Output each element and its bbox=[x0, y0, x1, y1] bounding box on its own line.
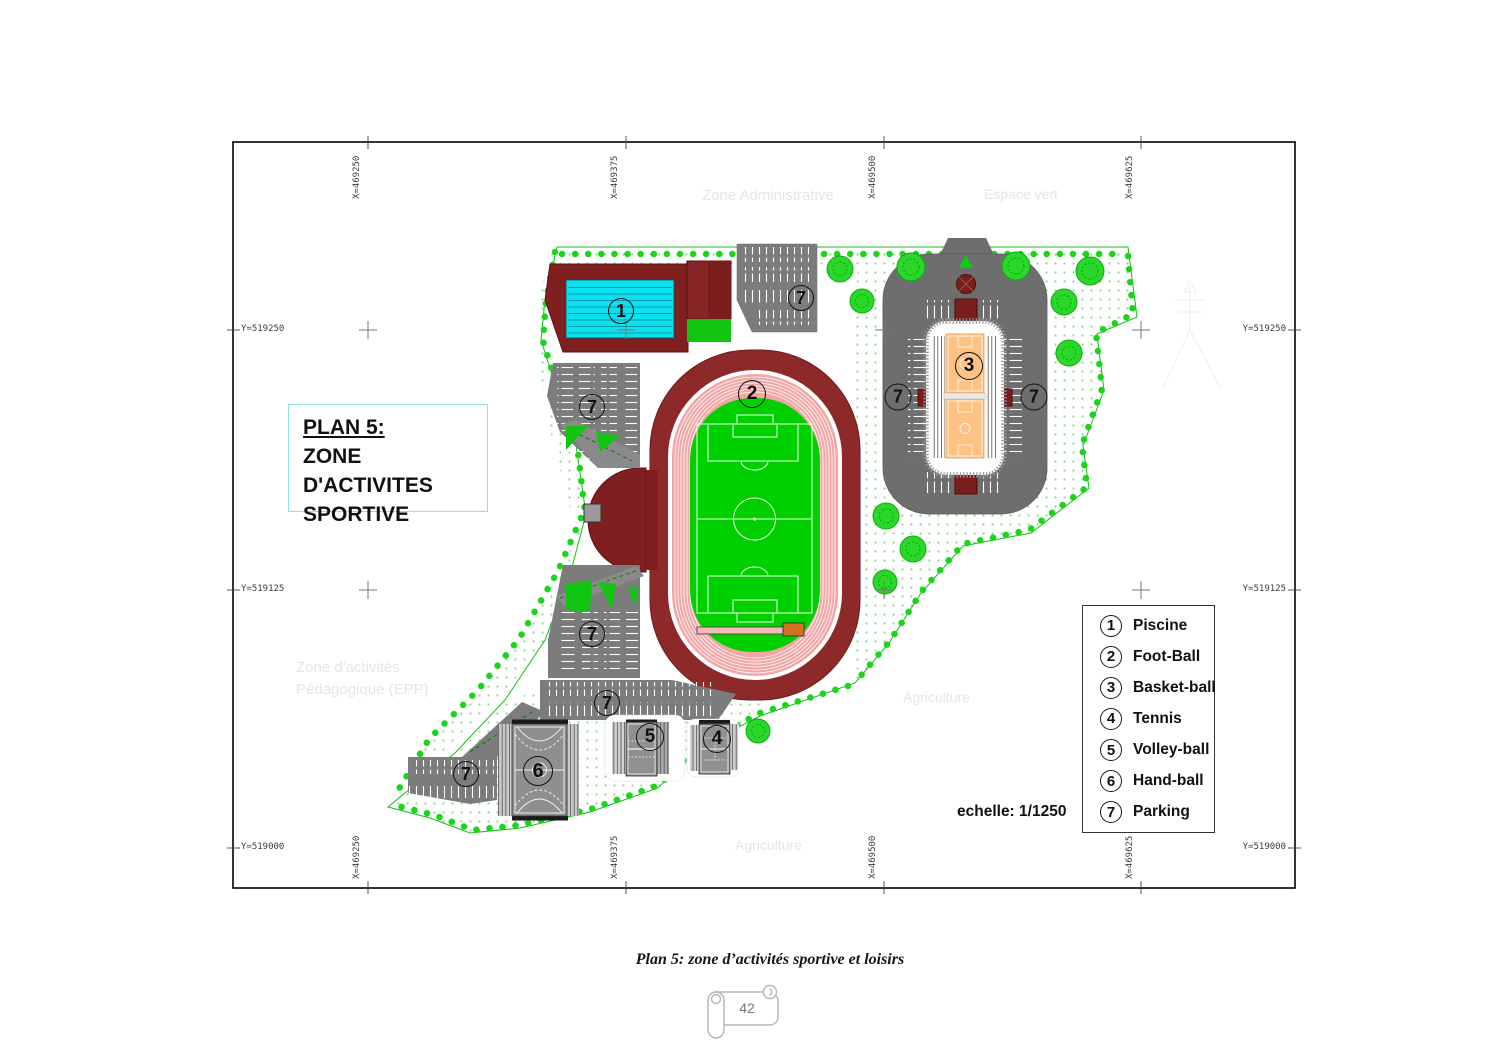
marker-parking-bottom: 7 bbox=[594, 690, 620, 716]
basketball-court-south bbox=[946, 399, 984, 458]
long-jump-pit bbox=[783, 623, 804, 636]
coord-y-left-1: Y=519250 bbox=[241, 324, 284, 335]
coord-y-left-3: Y=519000 bbox=[241, 842, 284, 853]
coord-x-bottom-3: X=469500 bbox=[868, 836, 879, 879]
legend-number-circle: 6 bbox=[1100, 770, 1122, 792]
long-jump-runway bbox=[697, 627, 785, 634]
marker-football: 2 bbox=[738, 380, 766, 408]
legend-number-circle: 4 bbox=[1100, 708, 1122, 730]
marker-parking-basket-east: 7 bbox=[1021, 384, 1048, 411]
coord-x-bottom-2: X=469375 bbox=[610, 836, 621, 879]
marker-tennis: 4 bbox=[703, 725, 731, 753]
marker-parking-basket-west: 7 bbox=[885, 384, 912, 411]
document-page: PLAN 5: ZONE D'ACTIVITES SPORTIVE 1 Pisc… bbox=[0, 0, 1489, 1053]
legend-item-hand: 6 Hand-ball bbox=[1100, 770, 1214, 792]
coord-y-right-2: Y=519125 bbox=[1206, 584, 1286, 595]
coord-x-top-2: X=469375 bbox=[610, 156, 621, 199]
marker-basket: 3 bbox=[955, 352, 983, 380]
marker-piscine: 1 bbox=[608, 298, 634, 324]
coord-y-right-1: Y=519250 bbox=[1206, 324, 1286, 335]
legend-label: Piscine bbox=[1133, 617, 1187, 635]
legend-number-circle: 1 bbox=[1100, 615, 1122, 637]
marker-parking-topright: 7 bbox=[788, 285, 814, 311]
green-strip bbox=[687, 319, 731, 342]
watermark-zone-administrative: Zone Administrative bbox=[702, 187, 834, 204]
football-field bbox=[690, 398, 820, 652]
watermark-agriculture-right: Agriculture bbox=[903, 689, 970, 705]
legend-number-circle: 7 bbox=[1100, 801, 1122, 823]
coord-x-top-4: X=469625 bbox=[1125, 156, 1136, 199]
marker-volley: 5 bbox=[636, 723, 664, 751]
site-plan-drawing bbox=[0, 0, 1489, 1053]
legend-label: Hand-ball bbox=[1133, 772, 1204, 790]
plan-title-line3: SPORTIVE bbox=[303, 500, 487, 529]
legend-item-football: 2 Foot-Ball bbox=[1100, 646, 1214, 668]
coord-x-top-1: X=469250 bbox=[352, 156, 363, 199]
watermark-agriculture-bottom: Agriculture bbox=[735, 837, 802, 853]
legend-number-circle: 2 bbox=[1100, 646, 1122, 668]
legend-item-volley: 5 Volley-ball bbox=[1100, 739, 1214, 761]
legend-label: Foot-Ball bbox=[1133, 648, 1200, 666]
legend-item-tennis: 4 Tennis bbox=[1100, 708, 1214, 730]
marker-parking-left-lower: 7 bbox=[579, 621, 605, 647]
legend-item-parking: 7 Parking bbox=[1100, 801, 1214, 823]
watermark-zone-pedagogique-2: Pédagogique (EPP) bbox=[296, 681, 429, 698]
coord-y-right-3: Y=519000 bbox=[1206, 842, 1286, 853]
marker-parking-bottom-left: 7 bbox=[453, 761, 479, 787]
scale-label: echelle: 1/1250 bbox=[957, 803, 1066, 821]
coord-x-top-3: X=469500 bbox=[868, 156, 879, 199]
legend-label: Parking bbox=[1133, 803, 1190, 821]
coord-y-left-2: Y=519125 bbox=[241, 584, 284, 595]
watermark-zone-pedagogique-1: Zone d'activités bbox=[296, 659, 400, 676]
legend-number-circle: 3 bbox=[1100, 677, 1122, 699]
coord-x-bottom-4: X=469625 bbox=[1125, 836, 1136, 879]
marker-hand: 6 bbox=[523, 756, 553, 786]
plan-title-box: PLAN 5: ZONE D'ACTIVITES SPORTIVE bbox=[288, 404, 488, 512]
legend-label: Volley-ball bbox=[1133, 741, 1209, 759]
figure-caption: Plan 5: zone d’activités sportive et loi… bbox=[120, 951, 1420, 969]
entrance-gate bbox=[584, 504, 601, 522]
legend-item-piscine: 1 Piscine bbox=[1100, 615, 1214, 637]
legend-number-circle: 5 bbox=[1100, 739, 1122, 761]
plan-title-line2: ZONE D'ACTIVITES bbox=[303, 442, 487, 500]
legend-box: 1 Piscine 2 Foot-Ball 3 Basket-ball 4 Te… bbox=[1082, 605, 1215, 833]
pool-building bbox=[545, 261, 731, 352]
watermark-espace-vert: Espace vert bbox=[984, 186, 1058, 202]
page-number: 42 bbox=[730, 1000, 764, 1016]
legend-label: Basket-ball bbox=[1133, 679, 1216, 697]
marker-parking-left-upper: 7 bbox=[579, 394, 605, 420]
coord-x-bottom-1: X=469250 bbox=[352, 836, 363, 879]
legend-item-basket: 3 Basket-ball bbox=[1100, 677, 1214, 699]
legend-label: Tennis bbox=[1133, 710, 1182, 728]
plan-title-line1: PLAN 5: bbox=[303, 413, 487, 442]
